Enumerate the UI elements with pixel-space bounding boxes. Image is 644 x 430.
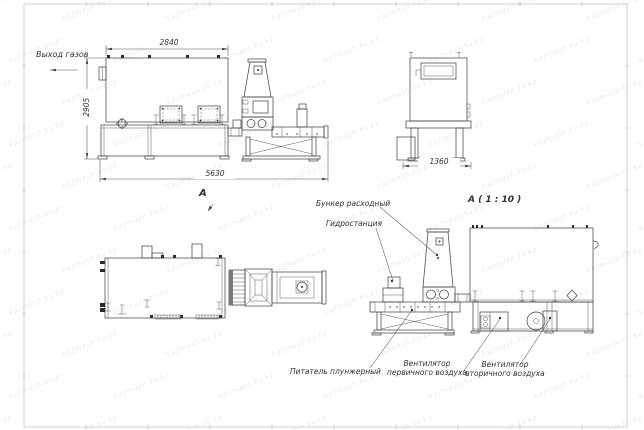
side-box xyxy=(397,137,415,160)
label-hydro: Гидростанция xyxy=(326,220,382,229)
hopper-detail xyxy=(423,229,470,302)
plunger-feeder xyxy=(370,302,460,312)
lifting-hook xyxy=(593,241,598,249)
diamond-mark xyxy=(567,290,577,301)
dim-2905: 2905 xyxy=(83,89,92,125)
end-view xyxy=(397,52,471,169)
secondary-air-fan xyxy=(527,311,557,331)
label-view-a: А xyxy=(199,190,207,199)
dim-5630: 5630 xyxy=(194,170,236,179)
gas-outlet-leader xyxy=(50,69,78,71)
feeder-frame-detail xyxy=(372,312,454,335)
label-feeder: Питатель плунжерный xyxy=(290,368,381,377)
dim-2840: 2840 xyxy=(149,39,189,48)
hatch-handle xyxy=(416,70,421,76)
primary-air-fan xyxy=(480,312,508,331)
detail-view-a xyxy=(370,207,598,372)
bolt-strips xyxy=(155,315,219,319)
label-primary-fan-line2: первичного воздуха xyxy=(387,368,467,377)
label-gas-outlet: Выход газов xyxy=(36,51,88,60)
hopper-plan xyxy=(245,269,272,306)
stand-marks xyxy=(473,291,558,301)
feeder-housing-plan xyxy=(272,271,326,304)
base-frame xyxy=(98,125,229,159)
label-primary-fan: Вентилятор первичного воздуха xyxy=(384,360,470,377)
furnace-body-detail xyxy=(470,225,598,302)
flange xyxy=(117,118,128,129)
hopper-assembly xyxy=(228,59,273,136)
ribbed-feeder-section xyxy=(229,270,245,305)
drawing-sheet: kazmash.kv.kzkazmash.kv.kzkazmash.kv.kzk… xyxy=(0,0,644,430)
hatch-box-1 xyxy=(160,106,182,123)
under-frame xyxy=(471,302,593,333)
top-hatch xyxy=(421,63,456,79)
dim-1360: 1360 xyxy=(418,158,460,167)
label-secondary-fan: Вентилятор вторичного воздуха xyxy=(462,361,548,378)
plan-view xyxy=(100,204,326,319)
plunger-cylinder xyxy=(297,109,307,127)
leader-lines xyxy=(370,207,550,372)
feeder-support-frame xyxy=(242,137,320,161)
view-a-arrow xyxy=(208,204,213,211)
feeder-beam xyxy=(272,104,328,138)
front-view xyxy=(50,45,328,182)
hatch-box-2 xyxy=(198,106,220,123)
furnace-body xyxy=(99,55,228,129)
label-detail-a: А ( 1 : 10 ) xyxy=(468,196,521,205)
label-secondary-fan-line2: вторичного воздуха xyxy=(465,369,545,378)
jack-marks xyxy=(106,259,222,315)
label-hopper: Бункер расходный xyxy=(316,200,390,209)
